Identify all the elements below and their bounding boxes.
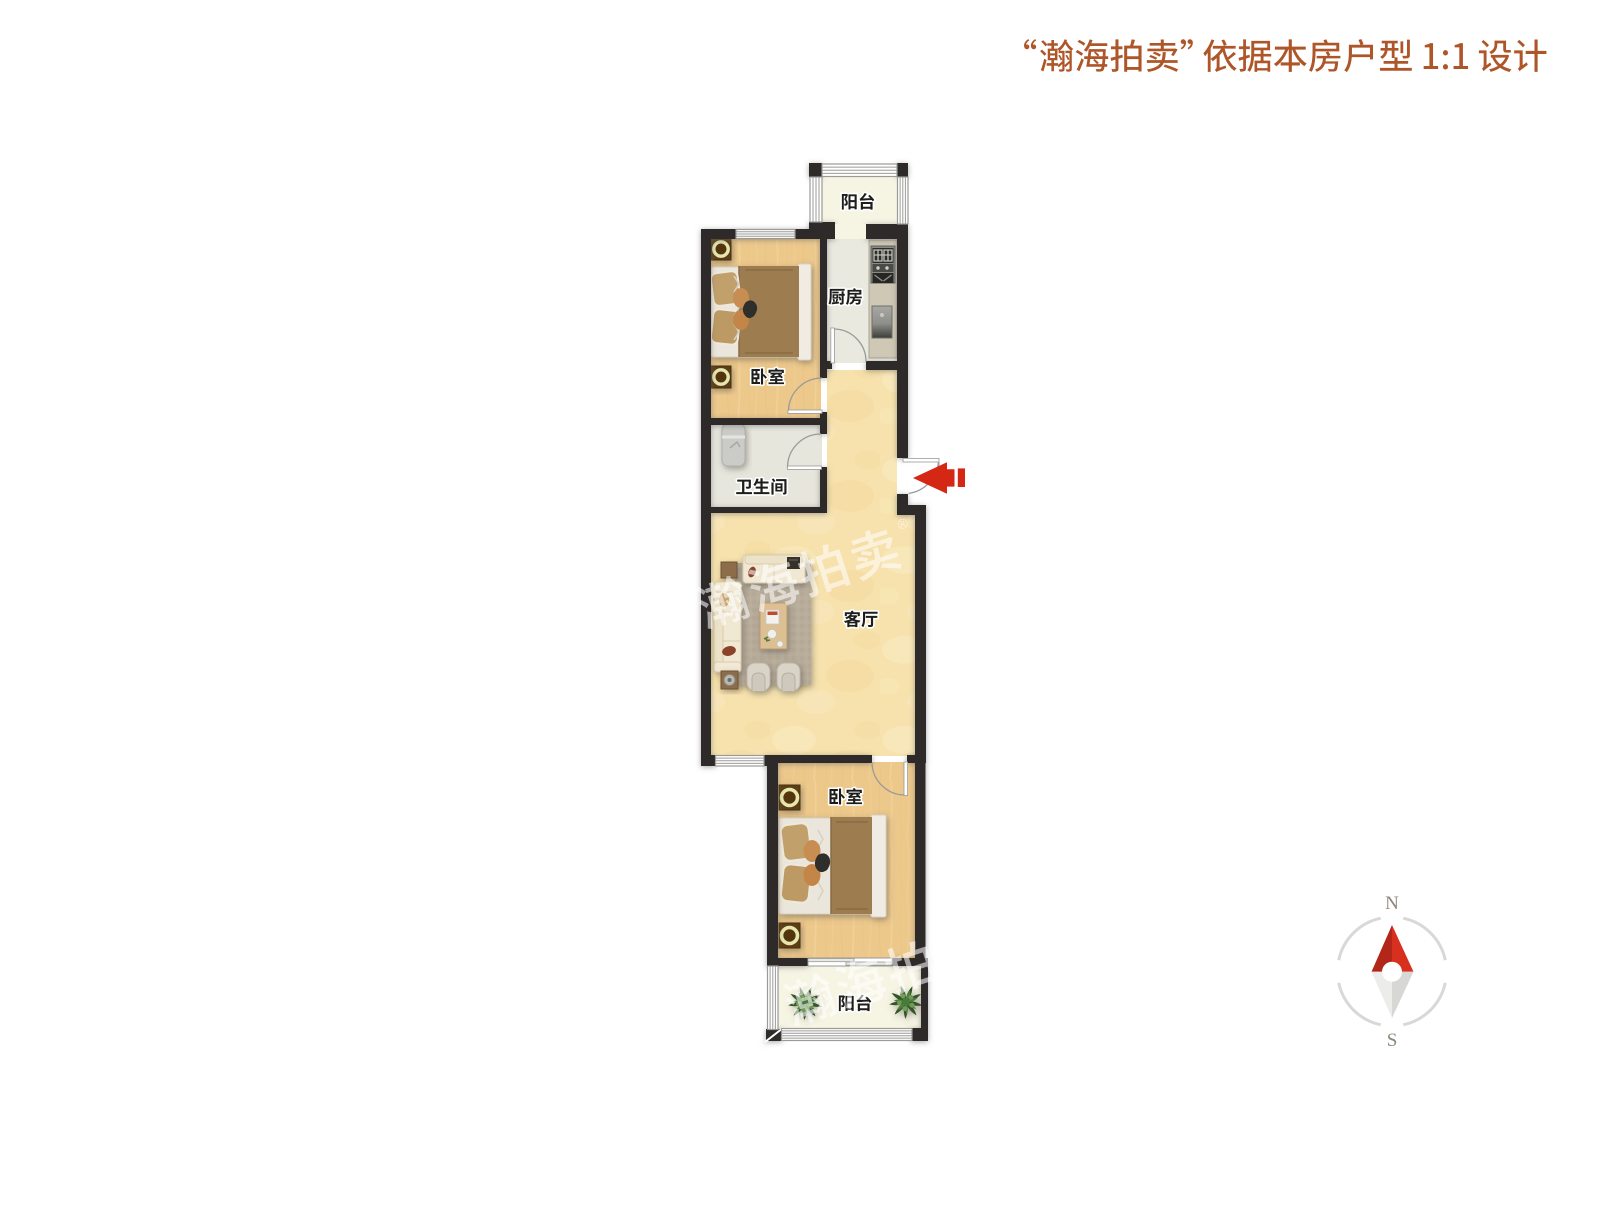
svg-text:S: S bbox=[1387, 1030, 1398, 1051]
svg-text:N: N bbox=[1385, 893, 1399, 914]
svg-text:®: ® bbox=[982, 911, 997, 930]
